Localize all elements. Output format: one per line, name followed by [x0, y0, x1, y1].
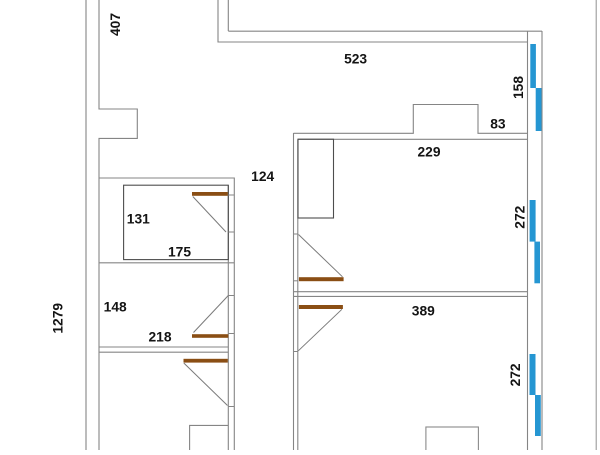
svg-text:218: 218	[148, 330, 171, 345]
svg-text:83: 83	[490, 116, 506, 131]
svg-text:523: 523	[344, 52, 367, 67]
svg-text:1279: 1279	[51, 303, 66, 334]
svg-text:175: 175	[168, 245, 191, 260]
svg-text:272: 272	[508, 363, 523, 386]
svg-text:272: 272	[512, 205, 527, 228]
svg-text:158: 158	[511, 76, 526, 99]
svg-text:148: 148	[104, 300, 127, 315]
svg-text:407: 407	[108, 13, 123, 36]
svg-text:389: 389	[412, 304, 435, 319]
svg-text:131: 131	[127, 212, 150, 227]
svg-text:229: 229	[417, 145, 440, 160]
svg-text:124: 124	[251, 169, 274, 184]
